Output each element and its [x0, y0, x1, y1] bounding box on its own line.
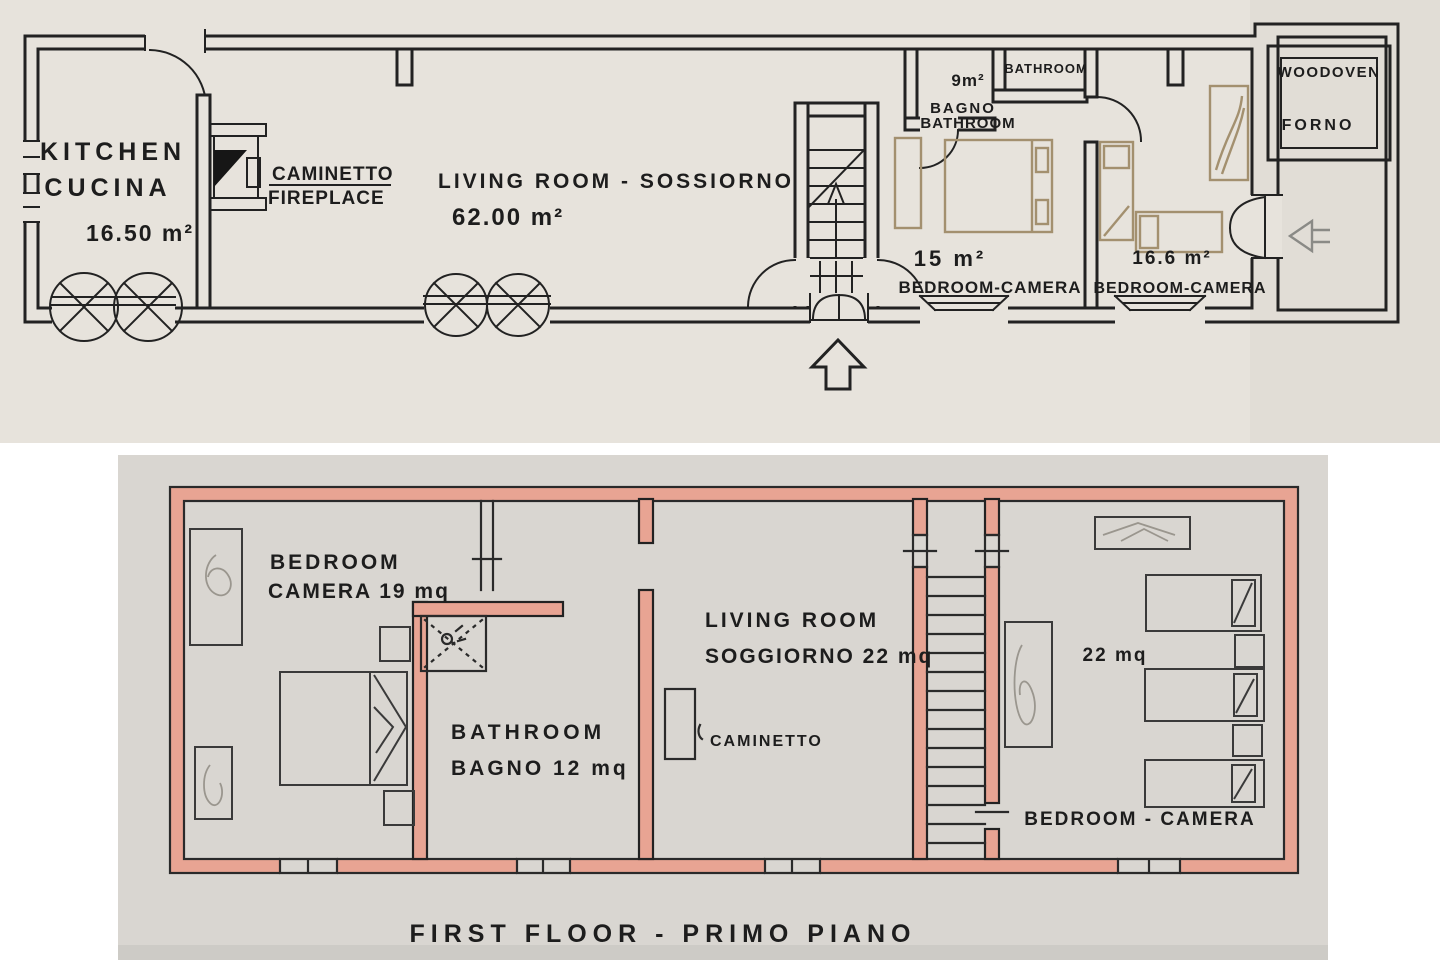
wall-pier: [1168, 49, 1183, 85]
woodoven-label-en: WOODOVEN: [1278, 64, 1381, 81]
bedroom1-label: BEDROOM-CAMERA: [898, 278, 1081, 297]
bedroom1-window: [920, 293, 1008, 325]
bedroom-left-label-line2: CAMERA 19 mq: [268, 580, 450, 603]
first-floor-photo: BEDROOM CAMERA 19 mq BATHROOM BAGNO 12 m…: [118, 455, 1328, 960]
bathroom-area: 9m²: [951, 71, 984, 90]
bathroom-top-wall: [413, 602, 563, 616]
window: [280, 857, 337, 875]
fireplace-label-en: FIREPLACE: [268, 188, 385, 209]
bedroom2-label: BEDROOM-CAMERA: [1093, 280, 1266, 297]
kitchen-wall: [197, 95, 210, 308]
fireplace-label-it: CAMINETTO: [272, 164, 394, 185]
bathroom-label-line1: BATHROOM: [451, 721, 605, 744]
kitchen-label-it: CUCINA: [44, 174, 171, 202]
wall-pier: [397, 49, 412, 85]
caminetto-label: CAMINETTO: [710, 733, 823, 750]
bedroom-left-label-line1: BEDROOM: [270, 551, 401, 574]
living-room-area: 62.00 m²: [452, 204, 564, 231]
ground-floor-photo: KITCHEN CUCINA 16.50 m² CAMINETTO FIREPL…: [0, 0, 1440, 443]
floor-plan-scan: KITCHEN CUCINA 16.50 m² CAMINETTO FIREPL…: [0, 0, 1440, 960]
stair-left-wall-stub: [913, 499, 927, 535]
living-room-label: LIVING ROOM - SOSSIORNO: [438, 170, 794, 193]
window: [765, 857, 820, 875]
entrance-door: [810, 293, 868, 325]
living-bedroom-wall: [639, 590, 653, 859]
bedroom2-window: [1115, 293, 1205, 325]
window: [1118, 857, 1180, 875]
kitchen-label-en: KITCHEN: [40, 138, 186, 166]
kitchen-area: 16.50 m²: [86, 220, 194, 246]
living-label-line2: SOGGIORNO 22 mq: [705, 645, 933, 668]
bathroom-label-en: BATHROOM: [920, 115, 1015, 132]
bathroom-label-line2: BAGNO 12 mq: [451, 757, 629, 780]
window: [517, 857, 570, 875]
bedroom-right-label: BEDROOM - CAMERA: [1024, 809, 1256, 830]
living-bedroom-wall-stub: [639, 499, 653, 543]
bathroom-alcove-label: BATHROOM: [1004, 61, 1088, 76]
stair-right-wall: [985, 567, 999, 803]
ground-floor-plan: KITCHEN CUCINA 16.50 m² CAMINETTO FIREPL…: [0, 0, 1440, 443]
stair-left-wall: [913, 567, 927, 859]
paper-background: [0, 0, 1440, 443]
living-label-line1: LIVING ROOM: [705, 609, 879, 632]
stair-right-wall-stub: [985, 499, 999, 535]
bedroom2-area: 16.6 m²: [1132, 248, 1211, 269]
bedroom-right-area: 22 mq: [1083, 645, 1148, 666]
first-floor-plan: BEDROOM CAMERA 19 mq BATHROOM BAGNO 12 m…: [118, 455, 1328, 960]
woodoven-label-it: FORNO: [1282, 117, 1355, 134]
first-floor-title: FIRST FLOOR - PRIMO PIANO: [410, 920, 917, 948]
stair-right-wall-bottom: [985, 829, 999, 859]
bedroom1-area: 15 m²: [914, 246, 986, 271]
